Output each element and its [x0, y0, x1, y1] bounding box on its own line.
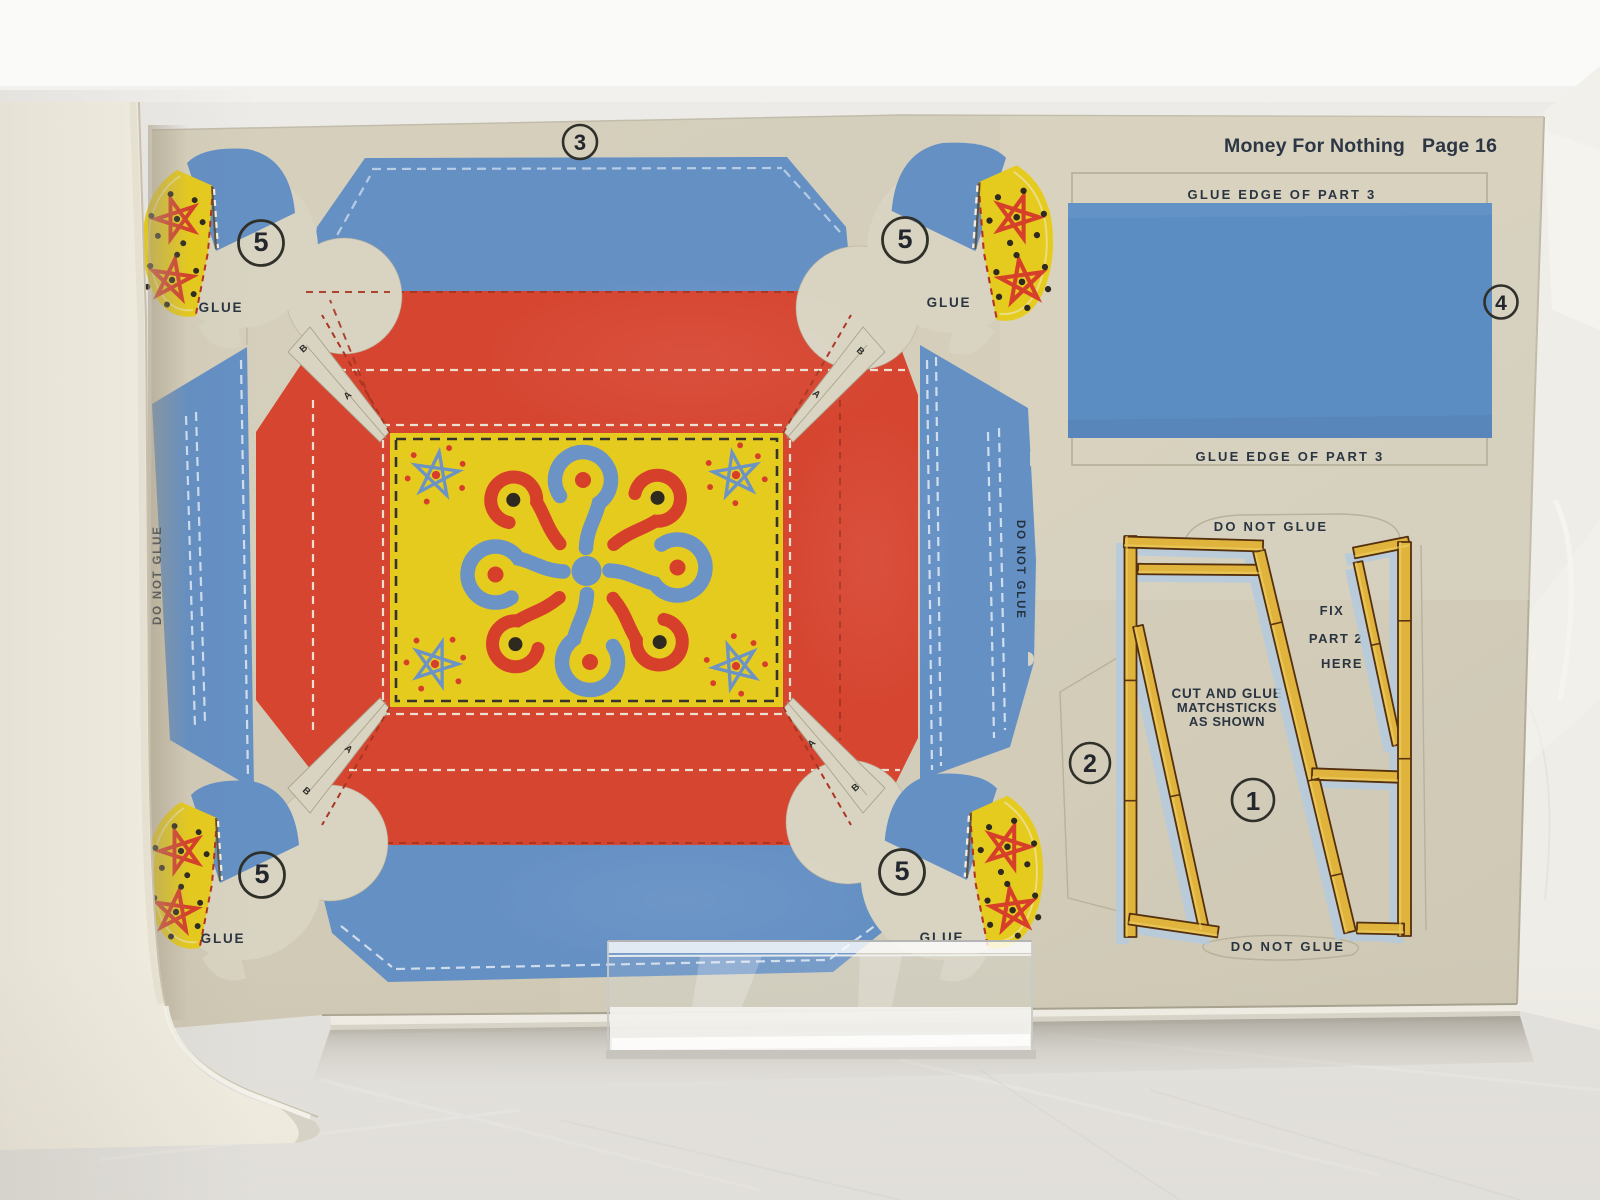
svg-text:2: 2 — [1083, 750, 1097, 778]
svg-text:1: 1 — [1246, 786, 1260, 816]
svg-text:Money For Nothing: Money For Nothing — [1224, 135, 1405, 157]
svg-text:GLUE EDGE OF PART 3: GLUE EDGE OF PART 3 — [1188, 187, 1377, 202]
svg-text:DO NOT GLUE: DO NOT GLUE — [1214, 519, 1328, 534]
svg-text:3: 3 — [574, 130, 586, 155]
svg-text:GLUE: GLUE — [927, 295, 972, 310]
svg-text:GLUE EDGE OF PART 3: GLUE EDGE OF PART 3 — [1196, 449, 1385, 464]
svg-text:4: 4 — [1495, 292, 1507, 315]
svg-text:Page 16: Page 16 — [1422, 135, 1497, 157]
svg-text:MATCHSTICKS: MATCHSTICKS — [1177, 700, 1277, 715]
svg-text:5: 5 — [894, 856, 909, 886]
svg-text:FIX: FIX — [1320, 603, 1345, 618]
svg-text:PART 2: PART 2 — [1309, 631, 1363, 646]
svg-text:HERE: HERE — [1321, 656, 1363, 671]
svg-text:5: 5 — [897, 224, 912, 254]
svg-text:CUT AND GLUE: CUT AND GLUE — [1171, 686, 1282, 701]
svg-text:AS SHOWN: AS SHOWN — [1189, 714, 1265, 729]
svg-text:DO NOT GLUE: DO NOT GLUE — [1014, 520, 1026, 620]
